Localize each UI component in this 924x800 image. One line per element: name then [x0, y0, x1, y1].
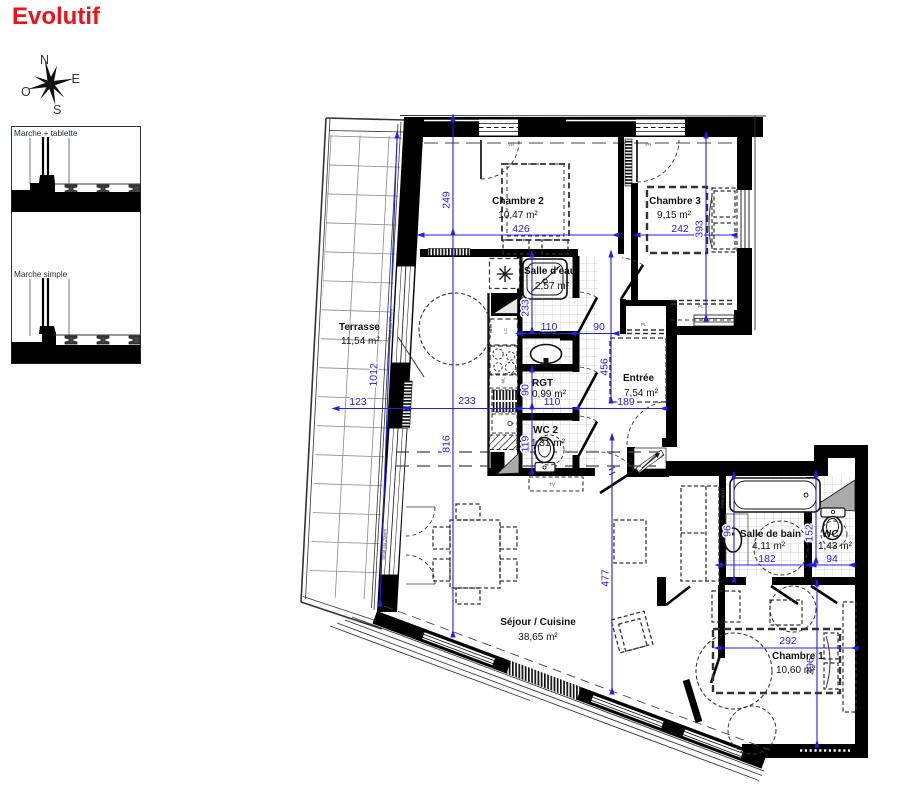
svg-text:E: E — [72, 72, 80, 86]
svg-text:90: 90 — [520, 384, 532, 396]
svg-text:Entrée: Entrée — [623, 373, 655, 384]
svg-text:0,99 m²: 0,99 m² — [532, 389, 567, 400]
svg-text:Salle d'eau: Salle d'eau — [524, 266, 576, 277]
svg-text:LC: LC — [503, 327, 508, 334]
svg-text:233: 233 — [520, 299, 532, 317]
svg-text:Marche simple: Marche simple — [14, 270, 68, 279]
svg-text:VR: VR — [645, 142, 652, 147]
svg-text:426: 426 — [512, 223, 530, 235]
svg-text:9,15 m²: 9,15 m² — [657, 210, 692, 221]
svg-text:1012: 1012 — [368, 363, 381, 387]
svg-text:Chambre 2: Chambre 2 — [492, 196, 544, 207]
svg-text:96: 96 — [722, 525, 734, 537]
svg-text:S: S — [53, 103, 61, 117]
svg-text:2,57 m²: 2,57 m² — [535, 281, 570, 292]
svg-text:PL: PL — [641, 322, 647, 327]
svg-text:Salle de bain: Salle de bain — [740, 529, 801, 540]
svg-text:123: 123 — [349, 396, 367, 408]
svg-text:WC: WC — [822, 529, 839, 540]
svg-text:Marche + tablette: Marche + tablette — [14, 129, 78, 138]
svg-text:O: O — [21, 85, 31, 99]
svg-text:RGT: RGT — [532, 378, 553, 389]
svg-text:393: 393 — [694, 220, 706, 238]
svg-text:456: 456 — [599, 358, 611, 376]
svg-text:249: 249 — [441, 191, 453, 209]
svg-text:TV: TV — [549, 482, 555, 487]
svg-text:233: 233 — [458, 395, 476, 407]
svg-text:Evolutif: Evolutif — [12, 3, 101, 30]
svg-text:816: 816 — [441, 435, 453, 453]
svg-text:182: 182 — [758, 553, 776, 565]
svg-text:4,11 m²: 4,11 m² — [752, 541, 786, 552]
svg-text:38,65 m²: 38,65 m² — [518, 632, 558, 643]
svg-text:152: 152 — [804, 524, 816, 542]
svg-text:90: 90 — [593, 321, 605, 333]
svg-text:292: 292 — [779, 635, 797, 647]
svg-text:110: 110 — [541, 321, 558, 333]
svg-text:10,47 m²: 10,47 m² — [498, 210, 538, 221]
svg-text:119: 119 — [520, 435, 532, 452]
svg-text:Pélicanon: Pélicanon — [720, 488, 725, 508]
svg-text:1,31 m²: 1,31 m² — [531, 438, 566, 449]
svg-text:Chambre 1: Chambre 1 — [772, 651, 824, 662]
svg-text:1,43 m²: 1,43 m² — [818, 541, 853, 552]
svg-text:10,60 m²: 10,60 m² — [776, 665, 816, 676]
svg-text:477: 477 — [600, 569, 612, 587]
svg-text:PL: PL — [698, 304, 704, 309]
svg-text:VR: VR — [508, 142, 515, 147]
svg-text:Séjour / Cuisine: Séjour / Cuisine — [500, 617, 576, 628]
svg-text:94: 94 — [826, 553, 838, 565]
svg-text:7,54 m²: 7,54 m² — [624, 388, 659, 399]
svg-text:ML: ML — [501, 377, 506, 384]
svg-text:Terrasse: Terrasse — [339, 322, 380, 333]
svg-text:11,54 m²: 11,54 m² — [341, 336, 380, 347]
svg-text:WC 2: WC 2 — [533, 425, 558, 436]
svg-text:Chambre 3: Chambre 3 — [649, 196, 701, 207]
svg-text:N: N — [40, 53, 49, 67]
svg-text:242: 242 — [671, 223, 689, 235]
